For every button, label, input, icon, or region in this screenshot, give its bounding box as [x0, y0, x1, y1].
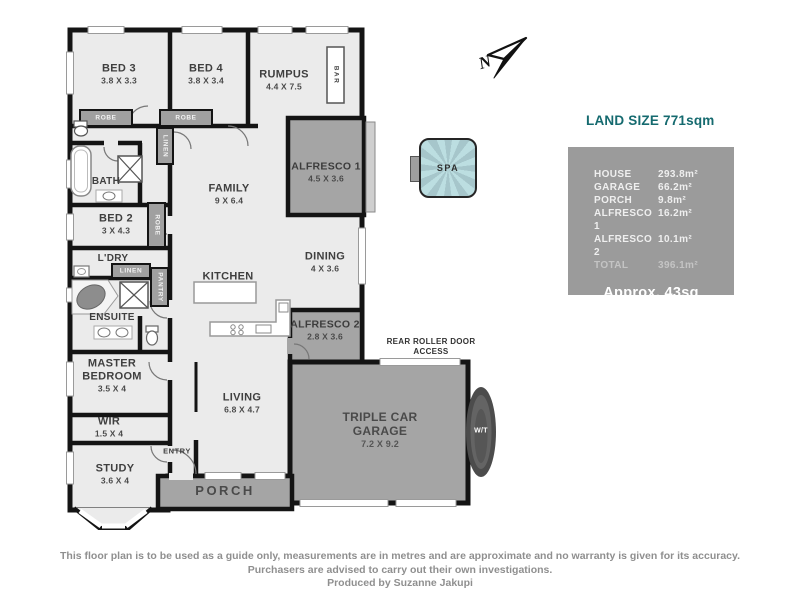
area-summary-panel: HOUSE 293.8m² GARAGE 66.2m² PORCH 9.8m² …	[568, 147, 734, 295]
disclaimer-line1: This floor plan is to be used as a guide…	[0, 550, 800, 564]
area-row-alfresco2: ALFRESCO 2 10.1m²	[568, 233, 734, 259]
robe-label-bed4: ROBE	[175, 115, 196, 122]
room-label-bath: BATH	[92, 176, 120, 188]
approx-squares: Approx. 43sq	[568, 285, 734, 301]
room-label-family: FAMILY 9 X 6.4	[208, 182, 249, 205]
room-label-study: STUDY 3.6 X 4	[96, 462, 135, 485]
spa-label: SPA	[437, 163, 459, 173]
robe-label-bed2: ROBE	[153, 214, 160, 235]
room-label-wir: WIR 1.5 X 4	[95, 415, 123, 438]
area-row-house: HOUSE 293.8m²	[568, 168, 734, 181]
rear-roller-label: REAR ROLLER DOOR ACCESS	[385, 337, 477, 357]
land-size-title: LAND SIZE 771sqm	[586, 113, 714, 128]
room-label-alfresco1: ALFRESCO 1 4.5 X 3.6	[291, 161, 361, 184]
room-label-ldry: L'DRY	[98, 253, 129, 265]
room-label-ensuite: ENSUITE	[89, 312, 134, 324]
area-row-garage: GARAGE 66.2m²	[568, 181, 734, 194]
floorplan-page: N SPA W/T BED 3 3.8 X 3.3 BED 4 3.8 X 3.…	[0, 0, 800, 600]
disclaimer: This floor plan is to be used as a guide…	[0, 550, 800, 591]
room-label-living: LIVING 6.8 X 4.7	[223, 391, 261, 414]
disclaimer-line2: Purchasers are advised to carry out thei…	[0, 564, 800, 578]
pantry-label: PANTRY	[156, 272, 163, 302]
linen-label-ensuite: LINEN	[120, 268, 143, 275]
area-row-total: TOTAL 396.1m²	[568, 259, 734, 272]
area-row-alfresco1: ALFRESCO 1 16.2m²	[568, 207, 734, 233]
disclaimer-line3: Produced by Suzanne Jakupi	[0, 577, 800, 591]
water-tank-label: W/T	[474, 428, 488, 435]
room-label-garage: TRIPLE CAR GARAGE 7.2 X 9.2	[336, 410, 424, 450]
room-label-bed4: BED 4 3.8 X 3.4	[188, 62, 224, 85]
area-row-porch: PORCH 9.8m²	[568, 194, 734, 207]
room-label-bed2: BED 2 3 X 4.3	[99, 212, 133, 235]
robe-label-bed3: ROBE	[95, 115, 116, 122]
room-label-kitchen: KITCHEN	[203, 270, 254, 283]
room-label-alfresco2: ALFRESCO 2 2.8 X 3.6	[290, 319, 360, 342]
room-label-rumpus: RUMPUS 4.4 X 7.5	[259, 68, 308, 91]
room-label-entry: ENTRY	[163, 447, 191, 456]
room-label-bed3: BED 3 3.8 X 3.3	[101, 62, 137, 85]
north-arrow-icon: N	[475, 38, 526, 78]
bar-label: BAR	[332, 66, 339, 85]
linen-label-hall: LINEN	[162, 135, 169, 158]
room-label-porch: PORCH	[195, 483, 254, 499]
room-label-dining: DINING 4 X 3.6	[305, 250, 345, 273]
room-label-master: MASTER BEDROOM 3.5 X 4	[77, 358, 147, 395]
